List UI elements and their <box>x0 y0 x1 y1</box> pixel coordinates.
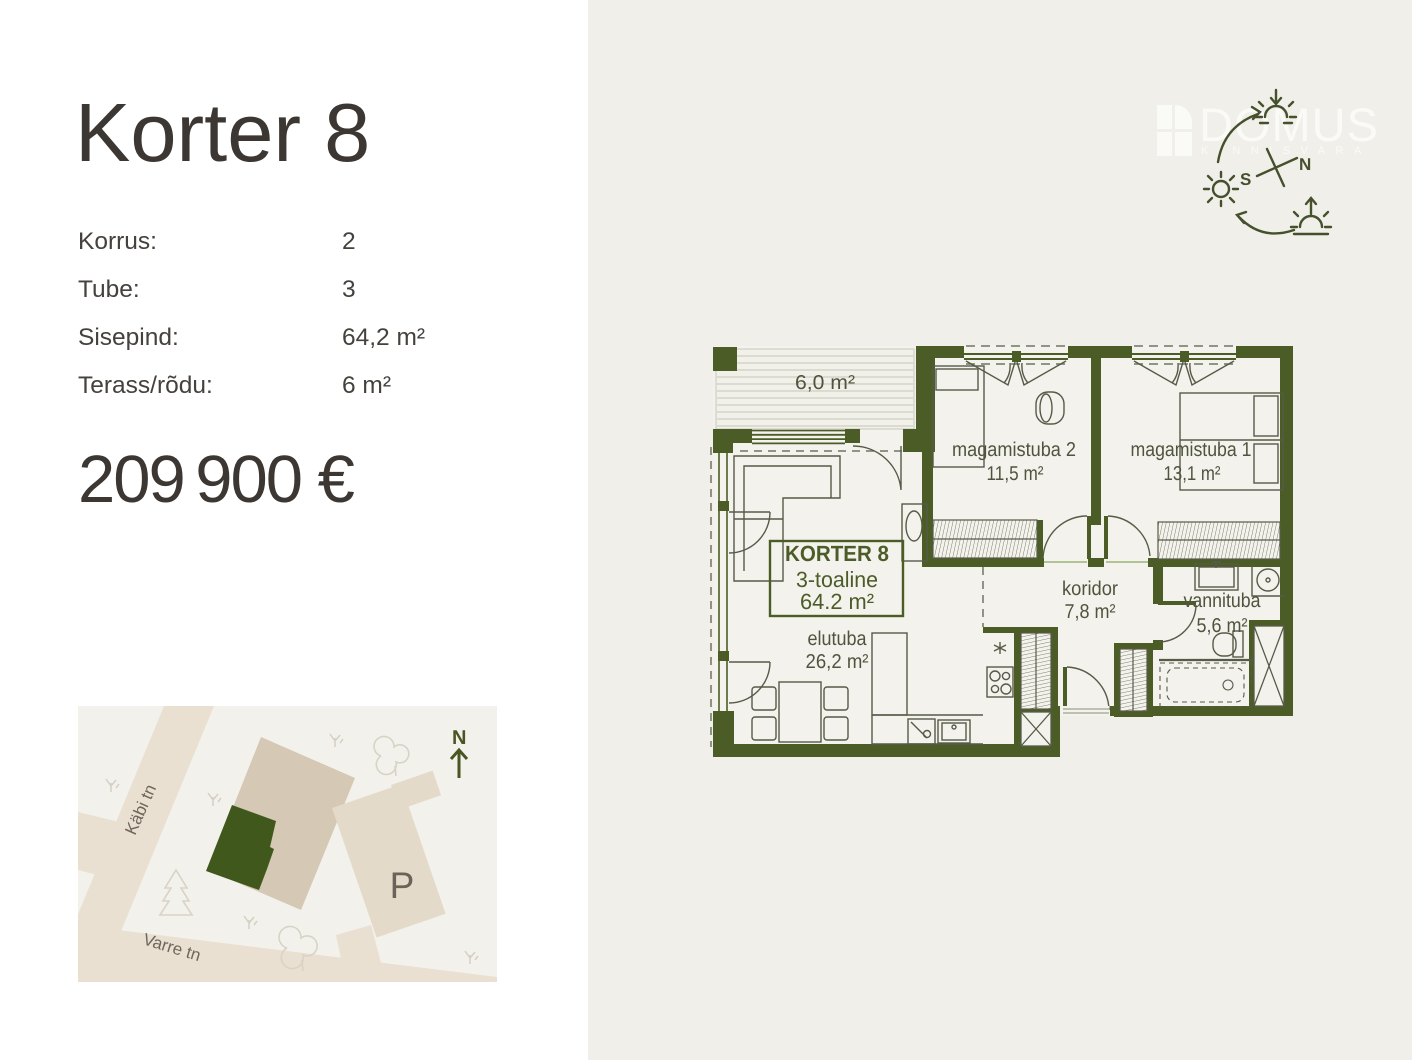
svg-text:6,0 m²: 6,0 m² <box>795 372 855 394</box>
svg-text:koridor: koridor <box>1062 578 1118 600</box>
svg-text:KINNISVARA: KINNISVARA <box>1201 145 1372 157</box>
svg-text:P: P <box>390 865 415 906</box>
svg-text:S: S <box>1240 170 1251 189</box>
svg-text:elutuba: elutuba <box>808 628 868 650</box>
svg-text:KORTER 8: KORTER 8 <box>785 541 889 566</box>
svg-text:5,6 m²: 5,6 m² <box>1197 615 1248 637</box>
svg-text:N: N <box>452 727 466 749</box>
svg-text:26,2 m²: 26,2 m² <box>806 651 869 673</box>
svg-text:vannituba: vannituba <box>1184 590 1262 612</box>
svg-text:13,1 m²: 13,1 m² <box>1164 463 1221 485</box>
svg-text:11,5 m²: 11,5 m² <box>987 463 1044 485</box>
svg-text:magamistuba 1: magamistuba 1 <box>1131 439 1252 461</box>
svg-text:64.2 m²: 64.2 m² <box>800 589 874 614</box>
svg-text:magamistuba 2: magamistuba 2 <box>952 439 1076 461</box>
svg-text:7,8 m²: 7,8 m² <box>1065 601 1116 623</box>
svg-text:N: N <box>1299 155 1311 174</box>
